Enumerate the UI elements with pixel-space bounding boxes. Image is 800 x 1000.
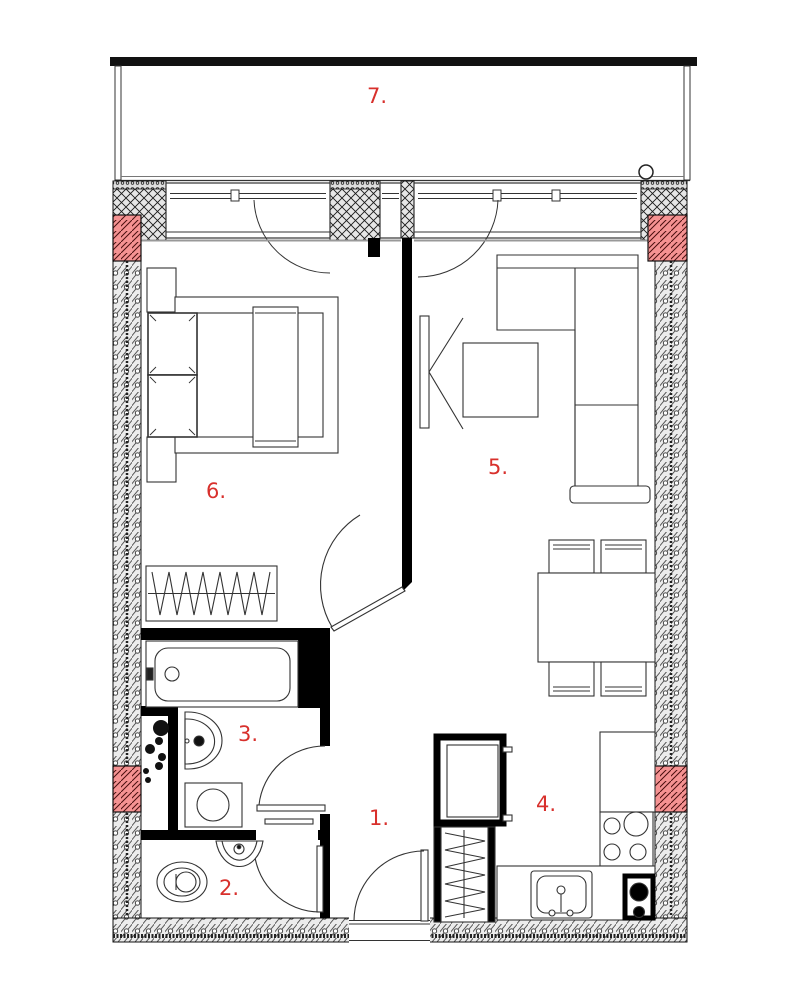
balcony-left-rail xyxy=(115,66,121,180)
living-room-furniture xyxy=(420,255,655,696)
room-label-living: 5. xyxy=(488,457,508,478)
floor-plan-drawing xyxy=(0,0,800,1000)
column-bottom-left xyxy=(113,766,141,812)
window-narrow xyxy=(380,183,401,238)
oven-unit xyxy=(625,876,653,918)
wall-wc-top xyxy=(141,830,256,840)
balcony-parapet xyxy=(110,57,697,66)
room-label-bathroom: 3. xyxy=(238,724,258,745)
room-label-hall: 1. xyxy=(369,808,389,829)
bathroom-door xyxy=(257,746,325,824)
sofa-armrest xyxy=(570,486,650,503)
pier-narrow xyxy=(401,181,414,238)
toilet xyxy=(157,862,207,902)
stove xyxy=(600,812,653,866)
wardrobe xyxy=(146,566,277,621)
window-mullion xyxy=(552,190,560,201)
double-bed xyxy=(148,297,338,453)
bathroom-sink xyxy=(185,712,222,769)
balcony-right-rail xyxy=(684,66,690,180)
room-label-kitchen: 4. xyxy=(536,794,556,815)
wall-bathroom-right-upper xyxy=(320,640,330,746)
nightstand xyxy=(147,268,176,312)
window-mullion xyxy=(231,190,239,201)
wall-bedroom-living xyxy=(402,238,412,592)
dining-set xyxy=(538,540,655,696)
window-mullion xyxy=(493,190,501,201)
kitchen-fixtures xyxy=(434,732,655,922)
wall-wc-top-stub xyxy=(318,830,330,840)
doormat xyxy=(265,819,313,824)
room-label-wc: 2. xyxy=(219,878,239,899)
entrance-door xyxy=(354,850,428,921)
floor-plan: 1. 2. 3. 4. 5. 6. 7. xyxy=(0,0,800,1000)
washing-machine xyxy=(185,783,242,827)
pillow xyxy=(148,313,197,375)
hall-closet xyxy=(434,827,495,922)
pipe-shaft xyxy=(143,720,169,783)
wall-bathroom-top xyxy=(141,628,330,640)
wc-door xyxy=(254,846,323,912)
duvet xyxy=(253,307,298,447)
column-top-left xyxy=(113,215,141,261)
column-top-right xyxy=(648,215,687,261)
window-assembly-bedroom xyxy=(166,183,330,273)
counter-right xyxy=(600,732,655,812)
tv xyxy=(420,316,463,429)
room-label-balcony: 7. xyxy=(367,86,387,107)
pier-middle xyxy=(330,181,380,240)
wall-stub xyxy=(368,238,380,257)
kitchen-sink xyxy=(531,871,592,918)
bathtub xyxy=(146,641,298,707)
fridge xyxy=(437,737,512,823)
dining-table xyxy=(538,573,655,662)
doors xyxy=(254,515,428,921)
room-label-bedroom: 6. xyxy=(206,481,226,502)
balcony xyxy=(110,57,697,181)
nightstand xyxy=(147,437,176,482)
bedroom-furniture xyxy=(146,268,338,621)
balcony-drain xyxy=(639,165,653,179)
coffee-table xyxy=(463,343,538,417)
pillow xyxy=(148,375,197,437)
shaft-partition xyxy=(168,716,178,830)
bedroom-door xyxy=(321,515,405,631)
